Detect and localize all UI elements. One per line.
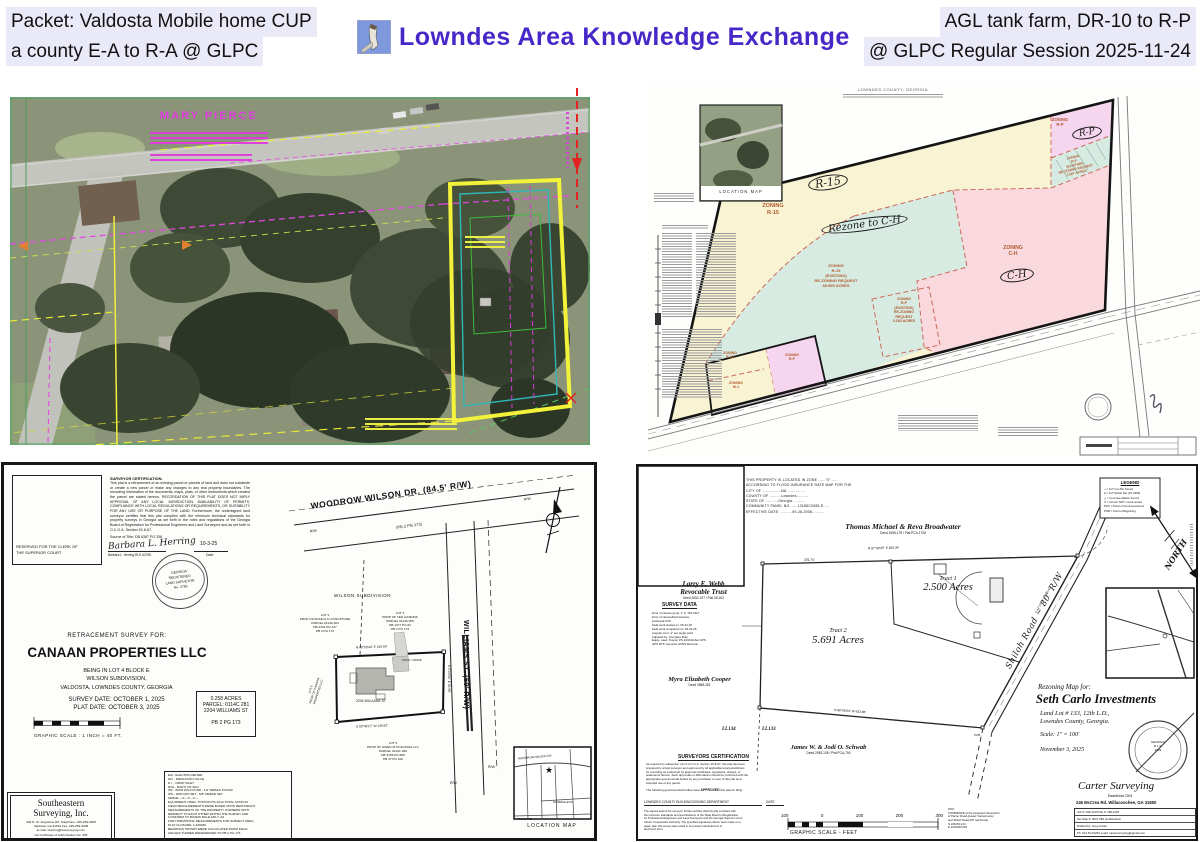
owner-south-deed: Deed 2983-108 / Plat PCA-790 bbox=[766, 751, 891, 755]
tract1-block: Tract 1 2.500 Acres bbox=[903, 576, 993, 593]
owner-west-name1: Larry E. Webb bbox=[656, 580, 751, 588]
subject-star-icon: ★ bbox=[545, 765, 553, 776]
aerial-photo-quadrant: MARY PIERCE bbox=[10, 88, 590, 445]
ll133-label: LL133 bbox=[762, 727, 776, 732]
scale-ticks: 100 0 100 200 300 bbox=[781, 813, 943, 818]
client-desc2: Lowndes County, Georgia. bbox=[1040, 718, 1109, 725]
approved-post: this plat for filing: bbox=[720, 788, 743, 792]
client-desc1: Land Lot # 133, 12th L.D., bbox=[1040, 710, 1110, 717]
lot3-note: LOT 3 PROP OF TED GASKINS PARCEL 0114A 0… bbox=[372, 611, 428, 631]
signature-line bbox=[108, 551, 166, 552]
header-left: Packet: Valdosta Mobile home CUP a count… bbox=[6, 7, 317, 66]
sheet-header: LOWNDES COUNTY, GEORGIA bbox=[813, 87, 973, 92]
illegible-prop-notes bbox=[365, 418, 457, 430]
owner-south-name: James W. & Jodi O. Schwab bbox=[766, 744, 891, 751]
date-line bbox=[194, 551, 228, 552]
approved-stamp: APPROVED bbox=[701, 788, 720, 792]
aerial-photo-map bbox=[10, 88, 590, 445]
signature-printed-name: Barbara L. Herring RLS #2765 bbox=[108, 553, 151, 557]
packet-title: Packet: Valdosta Mobile home CUP bbox=[6, 7, 317, 37]
scale-note: Scale: 1" = 100' bbox=[1040, 732, 1079, 738]
zone-label-small-rp: ZONING R-P bbox=[774, 353, 810, 362]
illegible-owner-notes bbox=[150, 132, 268, 146]
retracement-survey-quadrant: RESERVED FOR THE CLERK OF THE SUPERIOR C… bbox=[1, 462, 597, 841]
parcel-plat-ref: PB 2 PG 173 bbox=[197, 720, 255, 726]
scale-caption: GRAPHIC SCALE - FEET bbox=[790, 830, 858, 836]
owner-west-name2: Revocable Trust bbox=[656, 588, 751, 596]
illegible-owner-notes-2 bbox=[150, 154, 252, 164]
flood-statement: THIS PROPERTY IS LOCATED IN ZONE ......"… bbox=[746, 478, 866, 515]
firm-row-0: Job #: 298-1125 File #: 298-1125 bbox=[1075, 809, 1195, 816]
owner-north-name: Thomas Michael & Reva Broadwater bbox=[818, 522, 988, 531]
illegible-street-name-vertical bbox=[566, 112, 569, 168]
lot2-note: LOT 2 PROP OF BASILIA A LIVINGSTONE PARC… bbox=[296, 613, 354, 633]
owner-north-block: Thomas Michael & Reva Broadwater Deed 34… bbox=[818, 522, 988, 535]
session-title: @ GLPC Regular Session 2025-11-24 bbox=[864, 37, 1196, 67]
zone-label-rp: ZONING R-P bbox=[1043, 117, 1077, 128]
packet-page: Packet: Valdosta Mobile home CUP a count… bbox=[0, 0, 1200, 842]
zone-label-small-r15: ZONING R-15 bbox=[710, 351, 750, 360]
dept-date-line: DATE bbox=[766, 800, 784, 806]
cert-body: This plat is a retracement of an existin… bbox=[110, 481, 250, 532]
graphic-scale-label: GRAPHIC SCALE : 1 INCH = 40 FT. bbox=[34, 733, 122, 738]
location-map-caption-plat1: LOCATION MAP bbox=[512, 823, 592, 829]
house-number-label: 2204 WILLIAMS ST bbox=[356, 699, 386, 703]
owner-sw-block: Myra Elizabeth Cooper Deed 0588-281 bbox=[652, 676, 747, 687]
illegible-sheet-subheader bbox=[843, 94, 943, 99]
illegible-parcel-notes bbox=[465, 236, 505, 249]
approved-line: The following governmental bodies have A… bbox=[646, 788, 743, 792]
firm-sub: Established 2004 bbox=[1090, 794, 1150, 798]
tick-1: 0 bbox=[821, 813, 824, 818]
road-label-williams: WILLIAMS ST. (60' R/W) bbox=[462, 620, 469, 709]
rezoning-survey-quadrant: THIS PROPERTY IS LOCATED IN ZONE ......"… bbox=[636, 464, 1198, 841]
illegible-road-notes bbox=[898, 415, 978, 431]
rw-label-4: R/W bbox=[488, 765, 495, 769]
owner-sw-deed: Deed 0588-281 bbox=[652, 683, 747, 687]
parcel-info-box: 0.258 ACRES PARCEL: 0114C 281 2204 WILLI… bbox=[196, 691, 256, 737]
zone-note-rp-mid: ZONING R-P (EXISTING) RE-ZONING REQUEST … bbox=[880, 297, 928, 324]
lot5-note: LOT 5 PROP OF GWEN W HOLDINGS LLC PARCEL… bbox=[362, 741, 424, 761]
inset-street-rosedale: ROSEDALE PL bbox=[553, 800, 573, 804]
illegible-grid-note bbox=[1190, 524, 1193, 566]
pob-label: POB bbox=[974, 733, 980, 737]
approved-pre: The following governmental bodies have bbox=[646, 788, 700, 792]
tick-3: 200 bbox=[896, 813, 904, 818]
property-description: BEING IN LOT 4 BLOCK E WILSON SUBDIVISIO… bbox=[14, 667, 219, 692]
ll134-label: LL134 bbox=[722, 727, 736, 732]
owner-sw-name: Myra Elizabeth Cooper bbox=[652, 676, 747, 683]
conc-drive-label: CONC. DRIVE bbox=[402, 658, 422, 662]
firm-name-1: Southeastern bbox=[11, 798, 111, 808]
legend-items: □ = 1/2" Iron Pin Found ● = 1/2" Rebar S… bbox=[1104, 487, 1158, 513]
illegible-notes-block bbox=[662, 329, 722, 399]
survey-data-lines: Error of closure (pos): 1' in "NO.ADJ" E… bbox=[652, 612, 757, 647]
illegible-legend-title bbox=[662, 225, 708, 229]
header-right: AGL tank farm, DR-10 to R-P @ GLPC Regul… bbox=[864, 7, 1196, 66]
date-label: Date bbox=[206, 553, 213, 557]
brand-title: Lowndes Area Knowledge Exchange bbox=[399, 23, 850, 52]
tract1-acres: 2.500 Acres bbox=[903, 582, 993, 593]
plat-legend-box: EM - ELECTRIC METER WV - IRRIGATION VALV… bbox=[164, 771, 292, 839]
zone-label-small-m1: ZONING M-1 bbox=[716, 381, 756, 390]
owner-north-deed: Deed 3455-178 / Plat PCA-1708 bbox=[818, 531, 988, 535]
rw-label-3: R/W bbox=[450, 781, 457, 785]
tract2-acres: 5.691 Acres bbox=[788, 634, 888, 646]
surveyor-certification: SURVEYOR CERTIFICATION: This plat is a r… bbox=[110, 477, 250, 539]
tick-0: 100 bbox=[781, 813, 789, 818]
map-for-label: Rezoning Map for: bbox=[1038, 683, 1091, 691]
seal-text-plat2: GEORGIA R.L.S. 2969 bbox=[1143, 740, 1173, 753]
survey-date: SURVEY DATE: OCTOBER 1, 2025 bbox=[14, 697, 219, 703]
brand-block: Lowndes Area Knowledge Exchange bbox=[357, 20, 850, 54]
tick-2: 100 bbox=[856, 813, 864, 818]
firm-contact: 403 N. St. Augustine Rd. Telephone: 229-… bbox=[11, 820, 111, 837]
location-map-caption: LOCATION MAP bbox=[701, 189, 781, 194]
plat-date: PLAT DATE: OCTOBER 3, 2025 bbox=[14, 705, 219, 711]
tract2-block: Tract 2 5.691 Acres bbox=[788, 628, 888, 646]
firm-row-3: Ph: 912.514.5252 email: cartersurveying@… bbox=[1075, 830, 1195, 836]
clerk-corner-box bbox=[638, 466, 744, 586]
dept-signature-line: LOWNDES COUNTY BUILDING/ZONING DEPARTMEN… bbox=[644, 800, 762, 806]
zone-label-r15: ZONING R-15 bbox=[743, 203, 803, 217]
inset-street-park: PARK AVE bbox=[518, 817, 532, 821]
owner-west-block: Larry E. Webb Revocable Trust Deed 2652-… bbox=[656, 580, 751, 600]
zoning-map-quadrant: LOWNDES COUNTY, GEORGIA LOCATION MAP ZON… bbox=[648, 85, 1200, 458]
legend-title: LEGEND bbox=[1100, 480, 1160, 485]
illegible-road-notes-2 bbox=[998, 427, 1058, 437]
firm-title-table: Job #: 298-1125 File #: 298-1125 Tax Map… bbox=[1074, 808, 1196, 837]
cert-title-plat2: SURVEYORS CERTIFICATION bbox=[678, 754, 749, 761]
clerk-reserved-text: RESERVED FOR THE CLERK OF THE SUPERIOR C… bbox=[16, 544, 86, 555]
dist-north: 376.74' bbox=[804, 558, 814, 562]
firm-name-plat2: Carter Surveying bbox=[1078, 780, 1154, 792]
illegible-margin-note bbox=[654, 193, 694, 203]
survey-data-title: SURVEY DATA bbox=[662, 602, 697, 609]
firm-row-2: Drafted by: Greg Carter bbox=[1075, 823, 1195, 830]
bearing-north-line: N 87°40'35" E 869.34' bbox=[868, 546, 899, 551]
owner-south-block: James W. & Jodi O. Schwab Deed 2983-108 … bbox=[766, 744, 891, 755]
bearing-right: S 0°24'51" E 59.98' bbox=[447, 665, 451, 692]
cert-lines-plat2: As required by subsection (d) of O.C.G.A… bbox=[646, 763, 784, 786]
poc-note: POC: COMMENCE at the projected intersect… bbox=[948, 808, 1030, 830]
zone-note-teal: ZONING R-15 (EXISTING) RE-ZONING REQUEST… bbox=[793, 263, 879, 288]
lake-bird-logo-icon bbox=[357, 20, 391, 54]
case-title: AGL tank farm, DR-10 to R-P bbox=[940, 7, 1196, 37]
illegible-legend-col1 bbox=[662, 233, 692, 319]
parcel-address: 2204 WILLIAMS ST bbox=[197, 708, 255, 714]
client-name: CANAAN PROPERTIES LLC bbox=[12, 645, 222, 660]
dept-note: The signed seal of the surveyor further … bbox=[644, 810, 774, 832]
firm-row-1: Tax Map #: 0021 059 (subdivided) bbox=[1075, 816, 1195, 823]
owner-west-deed: Deed 2652-197 / Plat 35-202 bbox=[656, 596, 751, 600]
tick-4: 300 bbox=[935, 813, 943, 818]
firm-addr: 246 McCrea Rd. Willacoochee, GA 31650 bbox=[1076, 800, 1156, 805]
map-date: November 3, 2025 bbox=[1040, 747, 1084, 753]
seal-text: GEORGIA REGISTERED LAND SURVEYOR No. 276… bbox=[164, 569, 195, 591]
owner-name-label: MARY PIERCE bbox=[160, 110, 258, 122]
packet-subtitle: a county E-A to R-A @ GLPC bbox=[6, 37, 263, 67]
firm-name-2: Surveying, Inc. bbox=[11, 808, 111, 818]
firm-box: Southeastern Surveying, Inc. 403 N. St. … bbox=[10, 795, 112, 841]
clerk-reserved-box: RESERVED FOR THE CLERK OF THE SUPERIOR C… bbox=[12, 475, 102, 565]
zone-label-ch: ZONING C-H bbox=[988, 245, 1038, 258]
survey-for-label: RETRACEMENT SURVEY FOR: bbox=[32, 633, 202, 639]
subdivision-label: WILSON SUBDIVISION bbox=[334, 593, 391, 598]
signature-date: 10-3-25 bbox=[200, 541, 217, 547]
illegible-legend-col2 bbox=[696, 233, 736, 319]
rezoning-client: Seth Carlo Investments bbox=[1036, 692, 1156, 707]
